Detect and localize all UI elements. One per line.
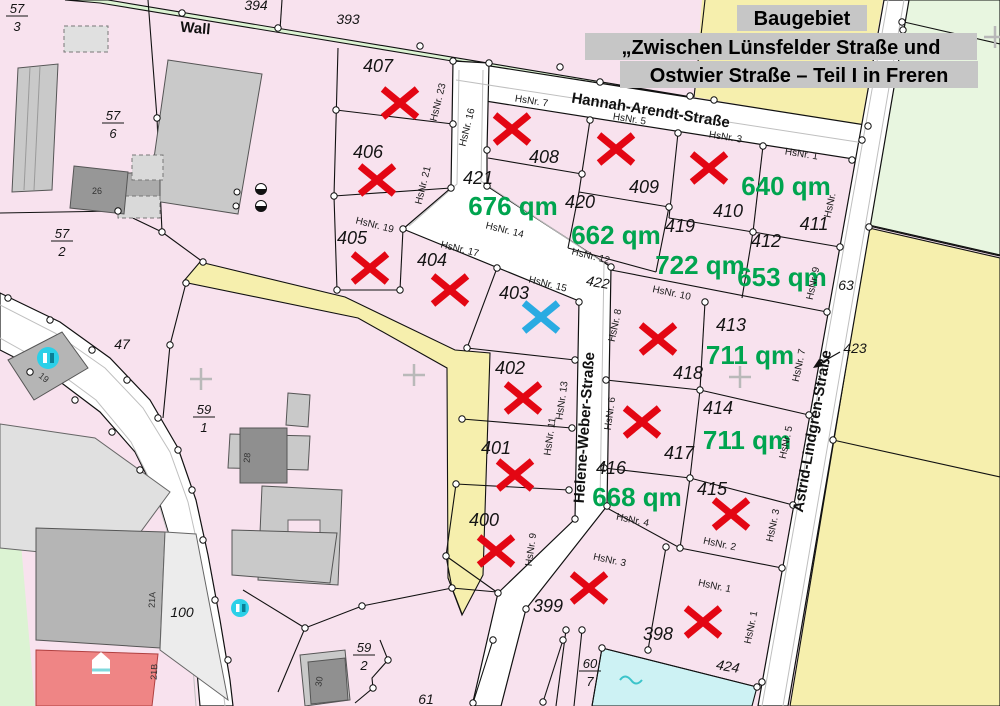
plot-400: 400 (469, 510, 499, 530)
area-419: 722 qm (655, 250, 745, 280)
plot-420: 420 (565, 192, 595, 212)
svg-text:59: 59 (197, 402, 211, 417)
plot-393: 393 (336, 11, 360, 27)
building (286, 393, 310, 427)
parcel-47: 47 (114, 336, 131, 352)
svg-text:26: 26 (92, 186, 102, 196)
plot-421: 421 (463, 168, 493, 188)
plot-402: 402 (495, 358, 525, 378)
area-414: 711 qm (703, 425, 791, 455)
parcel-100: 100 (170, 604, 194, 620)
building-21a (36, 528, 165, 648)
area-420: 662 qm (571, 220, 661, 250)
hydrant-icon (231, 599, 249, 617)
plot-413: 413 (716, 315, 746, 335)
area-416: 668 qm (592, 482, 682, 512)
plot-417: 417 (664, 443, 695, 463)
cadastral-map: Wall Hannah-Arendt-Straße Helene-Weber-S… (0, 0, 1000, 706)
parcel-63: 63 (838, 277, 854, 293)
svg-text:3: 3 (13, 19, 21, 34)
plot-398: 398 (643, 624, 673, 644)
shed-outline (132, 155, 163, 180)
map-canvas: Wall Hannah-Arendt-Straße Helene-Weber-S… (0, 0, 1000, 706)
plot-408: 408 (529, 147, 559, 167)
plot-414: 414 (703, 398, 733, 418)
svg-text:2: 2 (57, 244, 66, 259)
plot-418: 418 (673, 363, 703, 383)
area-411: 640 qm (741, 171, 831, 201)
svg-text:28: 28 (242, 452, 253, 463)
svg-text:57: 57 (10, 1, 25, 16)
plot-412: 412 (751, 231, 781, 251)
svg-text:30: 30 (313, 676, 325, 688)
svg-text:6: 6 (109, 126, 117, 141)
plot-419: 419 (665, 216, 695, 236)
plot-406: 406 (353, 142, 384, 162)
area-421: 676 qm (468, 191, 558, 221)
title-line-3: Ostwier Straße – Teil I in Freren (650, 65, 949, 87)
plot-401: 401 (481, 438, 511, 458)
svg-text:21A: 21A (147, 592, 158, 609)
svg-text:2: 2 (359, 658, 368, 673)
title-line-1: Baugebiet (754, 8, 851, 30)
shed-outline (64, 26, 108, 52)
svg-text:57: 57 (55, 226, 70, 241)
plot-423: 423 (843, 340, 867, 356)
plot-404: 404 (417, 250, 447, 270)
plot-416: 416 (596, 458, 627, 478)
plot-405: 405 (337, 228, 368, 248)
plot-394: 394 (244, 0, 268, 13)
area-413: 711 qm (706, 340, 794, 370)
svg-text:21B: 21B (149, 664, 160, 681)
plot-407: 407 (363, 56, 394, 76)
svg-text:1: 1 (200, 420, 207, 435)
plot-403: 403 (499, 283, 529, 303)
plot-409: 409 (629, 177, 659, 197)
hydrant-icon (37, 347, 59, 369)
plot-399: 399 (533, 596, 563, 616)
parcel-61: 61 (418, 691, 434, 706)
plot-415: 415 (697, 479, 728, 499)
title-line-2: „Zwischen Lünsfelder Straße und (622, 37, 941, 59)
svg-text:59: 59 (357, 640, 371, 655)
svg-text:7: 7 (586, 674, 594, 689)
svg-text:57: 57 (106, 108, 121, 123)
svg-text:60: 60 (583, 656, 598, 671)
street-label-wall: Wall (180, 19, 212, 39)
building (232, 530, 337, 583)
plot-410: 410 (713, 201, 743, 221)
